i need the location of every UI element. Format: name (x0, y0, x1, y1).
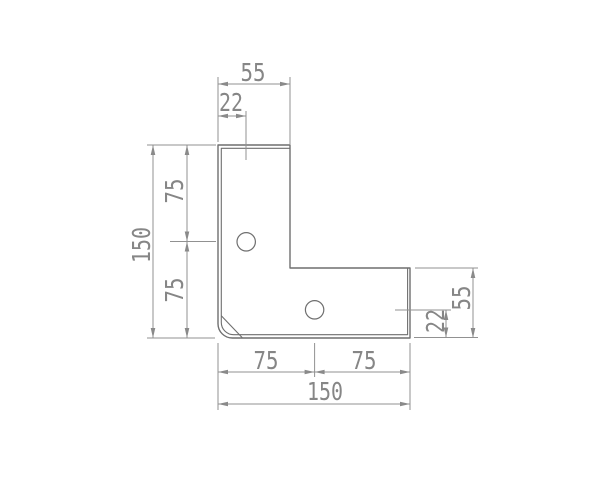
dim-label-right: 75 (352, 346, 377, 375)
drawing-sheet: 55 22 150 75 75 (0, 0, 600, 495)
arrowhead-mid-down (185, 232, 190, 242)
dim-left-overall: 150 (127, 145, 156, 338)
dim-label: 22 (421, 309, 450, 333)
dim-right-leg-height: 55 (447, 268, 476, 338)
part-outline (218, 145, 410, 338)
hole-lower (305, 301, 323, 319)
technical-drawing: 55 22 150 75 75 (0, 0, 600, 495)
dim-right-hole-offset: 22 (421, 309, 450, 338)
dim-top-hole-offset: 22 (218, 88, 246, 118)
arrowhead-top (185, 145, 190, 155)
dim-bottom-overall: 150 (218, 377, 410, 406)
dim-top-leg-width: 55 (218, 58, 290, 87)
arrowhead-left (218, 82, 228, 87)
part-view (218, 145, 410, 338)
dim-label-lower: 75 (160, 278, 189, 303)
arrowhead-top (471, 268, 476, 278)
arrowhead-right (400, 370, 410, 375)
arrowhead-bottom (185, 328, 190, 338)
arrowhead-top (151, 145, 156, 155)
dim-label: 150 (307, 377, 343, 406)
dim-label: 55 (241, 58, 266, 87)
dim-label: 22 (219, 88, 243, 117)
arrowhead-mid-right (305, 370, 315, 375)
arrowhead-left (218, 370, 228, 375)
arrowhead-right (400, 402, 410, 407)
dim-label: 55 (447, 286, 476, 311)
arrowhead-mid-left (315, 370, 325, 375)
dim-label: 150 (127, 227, 156, 263)
arrowhead-left (218, 402, 228, 407)
dim-bottom-halves: 75 75 (218, 346, 410, 375)
part-inner-contour (221, 148, 407, 334)
arrowhead-bottom (151, 328, 156, 338)
dim-label-left: 75 (254, 346, 279, 375)
hole-upper (237, 233, 255, 251)
dim-label-upper: 75 (160, 179, 189, 204)
arrowhead-right (280, 82, 290, 87)
extension-lines (147, 77, 478, 410)
arrowhead-mid-up (185, 242, 190, 252)
arrowhead-bottom (471, 328, 476, 338)
